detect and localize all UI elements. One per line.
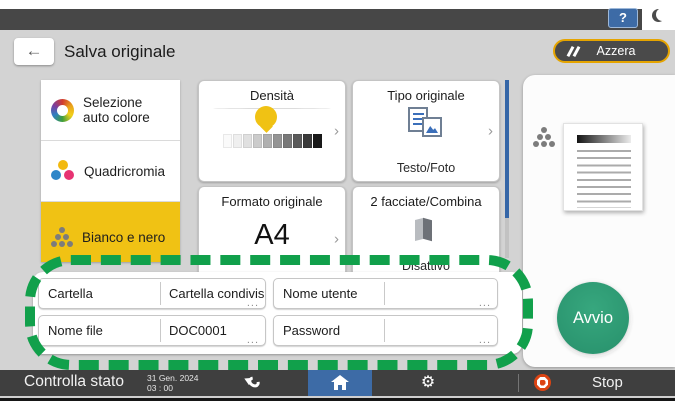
divider: [384, 319, 385, 342]
original-size-title: Formato originale: [199, 194, 345, 209]
auto-color-icon: [51, 99, 74, 122]
field-label: Cartella: [39, 286, 160, 301]
color-mode-list: Selezione auto colore Quadricromia Bianc…: [41, 80, 180, 262]
more-ellipsis: ...: [479, 297, 491, 309]
mode-label: Selezione auto colore: [83, 95, 169, 125]
original-type-value: Testo/Foto: [353, 161, 499, 175]
more-ellipsis: ...: [479, 334, 491, 346]
moon-icon: [656, 8, 669, 21]
folder-field[interactable]: Cartella Cartella condivis... ...: [38, 278, 266, 309]
help-button[interactable]: ?: [608, 8, 638, 28]
density-card[interactable]: Densità ›: [198, 80, 346, 182]
more-ellipsis: ...: [247, 334, 259, 346]
mode-auto-color[interactable]: Selezione auto colore: [41, 80, 180, 141]
original-size-value: A4: [199, 219, 345, 252]
density-pointer-icon: [255, 106, 277, 128]
duplex-combine-value: Disattivo: [353, 259, 499, 273]
energy-saver-tab[interactable]: [642, 0, 675, 30]
stop-icon: [534, 374, 551, 391]
mode-label: Bianco e nero: [82, 230, 168, 245]
density-card-title: Densità: [199, 88, 345, 103]
system-top-bar: [0, 9, 675, 30]
copier-touchscreen: ? ← Salva originale Azzera Selezione aut…: [0, 0, 675, 401]
file-name-field[interactable]: Nome file DOC0001 ...: [38, 315, 266, 346]
duplex-combine-title: 2 facciate/Combina: [353, 194, 499, 209]
stop-button[interactable]: Stop: [528, 370, 675, 396]
time: 03 : 00: [147, 384, 199, 394]
check-status-button[interactable]: Controlla stato: [24, 373, 124, 391]
density-scale: [223, 134, 322, 148]
text-photo-icon: [408, 107, 448, 143]
page-title: Salva originale: [64, 42, 176, 62]
field-label: Nome file: [39, 323, 160, 338]
scrollbar-thumb[interactable]: [505, 80, 509, 218]
date-time: 31 Gen. 2024 03 : 00: [147, 374, 199, 393]
original-type-card[interactable]: Tipo originale Testo/Foto ›: [352, 80, 500, 182]
chevron-right-icon: ›: [334, 231, 339, 248]
clear-button[interactable]: Azzera: [553, 39, 670, 63]
black-white-dots-icon: [533, 127, 555, 147]
more-ellipsis: ...: [247, 297, 259, 309]
mode-label: Quadricromia: [84, 164, 170, 179]
chevron-right-icon: ›: [488, 123, 493, 140]
mode-full-color[interactable]: Quadricromia: [41, 141, 180, 202]
chevron-right-icon: ›: [334, 123, 339, 140]
black-white-dots-icon: [51, 227, 73, 247]
mode-black-white[interactable]: Bianco e nero: [41, 202, 180, 262]
preview-gradient-bar: [577, 135, 631, 143]
eraser-icon: [569, 46, 578, 57]
start-button[interactable]: Avvio: [557, 282, 629, 354]
duplex-page-icon: [415, 219, 432, 240]
full-color-dots-icon: [51, 160, 75, 182]
original-type-title: Tipo originale: [353, 88, 499, 103]
divider: [384, 282, 385, 305]
password-field[interactable]: Password ...: [273, 315, 498, 346]
settings-button[interactable]: ⚙: [418, 372, 438, 392]
document-preview: [563, 123, 643, 211]
field-label: Nome utente: [274, 286, 384, 301]
back-undo-button[interactable]: [246, 376, 264, 390]
divider: [518, 374, 519, 392]
clear-button-label: Azzera: [578, 44, 668, 58]
field-label: Password: [274, 323, 384, 338]
preview-text-lines: [577, 150, 631, 208]
back-button[interactable]: ←: [14, 38, 54, 65]
home-icon: [330, 375, 350, 391]
home-button[interactable]: [308, 370, 372, 396]
user-name-field[interactable]: Nome utente ...: [273, 278, 498, 309]
system-bottom-bar: Controlla stato 31 Gen. 2024 03 : 00 ⚙ S…: [0, 370, 675, 396]
stop-button-label: Stop: [592, 374, 623, 391]
